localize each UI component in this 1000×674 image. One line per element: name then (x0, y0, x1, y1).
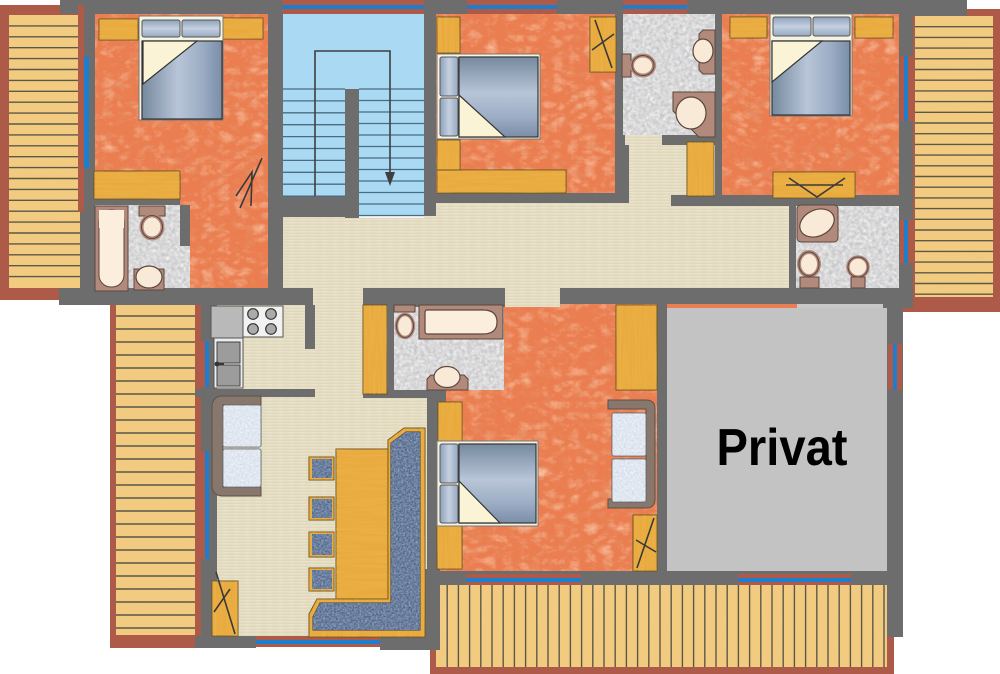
svg-text:Privat: Privat (717, 419, 848, 477)
